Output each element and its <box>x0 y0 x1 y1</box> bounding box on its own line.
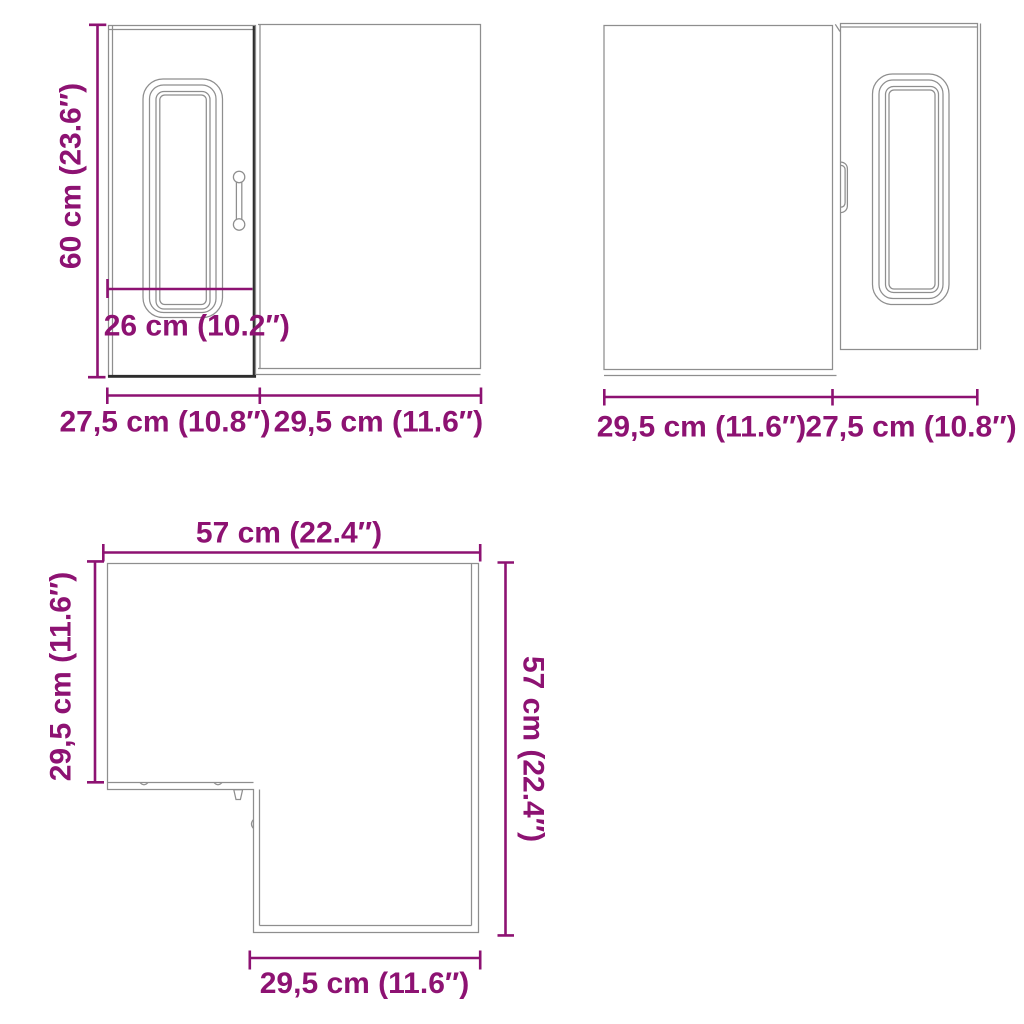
svg-text:27,5 cm (10.8″): 27,5 cm (10.8″) <box>60 406 271 439</box>
svg-text:29,5 cm (11.6″): 29,5 cm (11.6″) <box>45 572 78 782</box>
svg-text:29,5 cm (11.6″): 29,5 cm (11.6″) <box>260 967 470 1000</box>
svg-text:60 cm (23.6″): 60 cm (23.6″) <box>55 83 88 269</box>
svg-text:26 cm (10.2″): 26 cm (10.2″) <box>104 310 290 343</box>
svg-text:29,5 cm (11.6″): 29,5 cm (11.6″) <box>597 411 807 444</box>
svg-text:57 cm (22.4″): 57 cm (22.4″) <box>196 516 382 549</box>
svg-text:57 cm (22.4″): 57 cm (22.4″) <box>517 656 550 842</box>
svg-text:29,5 cm (11.6″): 29,5 cm (11.6″) <box>274 406 484 439</box>
svg-text:27,5 cm (10.8″): 27,5 cm (10.8″) <box>805 411 1016 444</box>
